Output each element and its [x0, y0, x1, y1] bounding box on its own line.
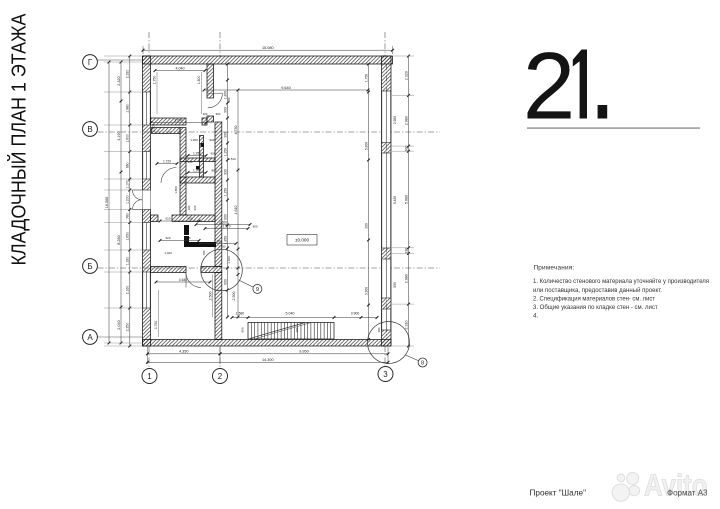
svg-text:900: 900 [209, 138, 214, 142]
svg-text:1.250: 1.250 [193, 151, 201, 155]
svg-text:400: 400 [203, 112, 208, 116]
svg-text:620: 620 [165, 217, 170, 221]
svg-text:8: 8 [421, 361, 424, 367]
svg-text:1.750: 1.750 [154, 321, 158, 329]
svg-text:900: 900 [223, 214, 227, 220]
svg-text:1.720: 1.720 [163, 159, 171, 163]
svg-text:Б: Б [87, 262, 92, 271]
svg-text:1.570: 1.570 [223, 224, 231, 228]
svg-text:1.250: 1.250 [223, 148, 227, 156]
svg-text:1.850: 1.850 [223, 236, 227, 244]
svg-text:1.170: 1.170 [125, 180, 129, 189]
svg-text:620: 620 [165, 236, 170, 240]
svg-text:2: 2 [523, 34, 576, 140]
svg-text:900: 900 [216, 112, 221, 116]
svg-text:15.080: 15.080 [262, 46, 274, 50]
svg-text:1.020: 1.020 [164, 251, 172, 255]
svg-text:4.190: 4.190 [117, 131, 121, 141]
svg-text:16.560: 16.560 [105, 197, 109, 209]
svg-text:КЛАДОЧНЫЙ ПЛАН 1 ЭТАЖА: КЛАДОЧНЫЙ ПЛАН 1 ЭТАЖА [6, 13, 30, 265]
svg-text:900: 900 [210, 152, 215, 156]
svg-text:330: 330 [404, 248, 408, 254]
svg-text:2.900: 2.900 [152, 124, 156, 133]
svg-text:А: А [87, 333, 93, 342]
svg-text:8.280: 8.280 [117, 235, 121, 245]
svg-text:600: 600 [223, 279, 227, 285]
svg-text:1.250: 1.250 [223, 188, 227, 196]
svg-text:9.950: 9.950 [299, 350, 309, 354]
svg-text:300: 300 [187, 205, 191, 210]
svg-text:3. Общие указания по кладке ст: 3. Общие указания по кладке стен - см. л… [533, 303, 658, 311]
svg-text:1.600: 1.600 [227, 256, 231, 264]
svg-text:5.680: 5.680 [404, 195, 408, 204]
svg-text:200: 200 [188, 160, 193, 164]
svg-text:1.600: 1.600 [125, 134, 129, 143]
svg-text:2.250: 2.250 [125, 323, 129, 332]
svg-text:1.750: 1.750 [153, 76, 157, 85]
svg-text:300: 300 [404, 146, 408, 152]
svg-text:1.980: 1.980 [125, 104, 129, 113]
svg-text:3: 3 [383, 370, 388, 379]
svg-text:660: 660 [125, 162, 129, 168]
svg-text:3.090: 3.090 [174, 119, 183, 123]
svg-text:3.900: 3.900 [351, 312, 360, 316]
svg-text:960: 960 [193, 205, 197, 210]
svg-text:9.640: 9.640 [281, 86, 291, 90]
svg-text:1: 1 [147, 372, 152, 381]
svg-text:1.510: 1.510 [228, 157, 236, 161]
svg-text:В: В [87, 125, 92, 134]
svg-text:2.980: 2.980 [404, 116, 408, 125]
svg-text:4.040: 4.040 [176, 66, 185, 70]
svg-text:2: 2 [218, 372, 223, 381]
svg-text:3.900: 3.900 [364, 287, 368, 295]
svg-text:1.200: 1.200 [125, 195, 129, 204]
svg-text:2.980: 2.980 [404, 274, 408, 283]
svg-text:Г: Г [88, 58, 93, 67]
svg-text:2.500: 2.500 [232, 292, 236, 301]
svg-text:2.320: 2.320 [125, 70, 129, 79]
svg-text:или поставщика, предоставив да: или поставщика, предоставив данный проек… [533, 286, 662, 294]
svg-text:2.500: 2.500 [209, 292, 213, 301]
svg-text:2.040: 2.040 [117, 320, 121, 330]
svg-text:300: 300 [364, 223, 368, 229]
svg-text:2.320: 2.320 [117, 76, 121, 86]
svg-text:300: 300 [223, 132, 227, 138]
svg-text:300: 300 [377, 327, 381, 332]
svg-text:4.610: 4.610 [234, 206, 238, 215]
svg-text:1.580: 1.580 [236, 312, 244, 316]
svg-text:2.020: 2.020 [214, 239, 222, 243]
svg-text:590: 590 [393, 282, 397, 288]
svg-text:880: 880 [211, 169, 216, 173]
svg-text:900: 900 [241, 327, 245, 332]
svg-text:5.800: 5.800 [364, 142, 368, 150]
svg-text:4.: 4. [533, 312, 539, 319]
svg-text:2.160: 2.160 [125, 286, 129, 295]
svg-text:1.750: 1.750 [364, 74, 368, 82]
svg-text:1.320: 1.320 [125, 257, 129, 266]
svg-text:2.310: 2.310 [404, 321, 408, 330]
svg-text:1.500: 1.500 [218, 245, 226, 249]
svg-text:300: 300 [295, 327, 299, 332]
svg-text:2.980: 2.980 [393, 116, 397, 124]
svg-text:1.800: 1.800 [174, 186, 178, 194]
svg-text:14.300: 14.300 [262, 358, 274, 362]
svg-text:5.040: 5.040 [286, 312, 295, 316]
svg-text:4.350: 4.350 [179, 350, 189, 354]
svg-text:Формат А3: Формат А3 [667, 487, 708, 497]
svg-text:Примечания:: Примечания: [534, 265, 575, 272]
svg-text:900: 900 [223, 107, 227, 113]
svg-text:700: 700 [202, 250, 206, 255]
svg-text:1.200: 1.200 [193, 168, 201, 172]
svg-text:900: 900 [187, 217, 192, 221]
svg-text:5.480: 5.480 [393, 196, 397, 204]
svg-text:4.640: 4.640 [179, 278, 188, 282]
svg-text:±0.000: ±0.000 [295, 238, 309, 243]
svg-text:300: 300 [227, 97, 231, 102]
svg-text:9: 9 [256, 287, 259, 293]
svg-text:1.650: 1.650 [125, 232, 129, 241]
svg-text:Проект "Шале": Проект "Шале" [530, 487, 587, 497]
svg-text:1.250: 1.250 [190, 138, 198, 142]
svg-text:900: 900 [252, 225, 257, 229]
svg-text:905: 905 [185, 236, 190, 240]
svg-text:4.730: 4.730 [234, 126, 238, 135]
svg-text:780: 780 [125, 213, 129, 219]
svg-text:900: 900 [223, 169, 227, 175]
svg-text:1. Количество стенового матери: 1. Количество стенового материала уточня… [533, 277, 709, 285]
svg-text:2.520: 2.520 [219, 220, 227, 224]
svg-text:2.320: 2.320 [404, 71, 408, 80]
svg-text:2. Спецификация материалов сте: 2. Спецификация материалов стен- см. лис… [533, 295, 655, 302]
svg-text:1.800: 1.800 [197, 76, 201, 85]
